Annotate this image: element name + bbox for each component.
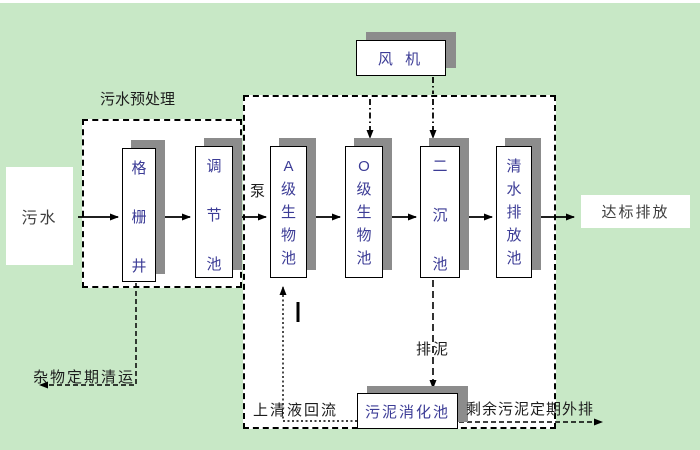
pretreatment-title: 污水预处理 [100,88,175,109]
regulating-tank-label: 调节池 [206,142,223,277]
sludge-discharge-label: 排泥 [416,338,450,359]
a-stage-bio-tank: A级生物池 [270,146,307,278]
influent-box: 污水 [6,167,73,265]
discharge-box: 达标排放 [581,195,690,228]
excess-sludge-label: 剩余污泥定期外排 [466,398,594,419]
discharge-label: 达标排放 [601,201,669,222]
secondary-clarifier-label: 二沉池 [432,142,449,277]
grid-well-tank: 格栅井 [122,148,156,282]
sludge-digester-label: 污泥消化池 [365,401,450,422]
clear-water-discharge-tank: 清水排放池 [496,146,532,278]
blower-box: 风 机 [356,40,446,76]
clear-water-discharge-label: 清水排放池 [506,147,523,277]
wastewater-treatment-flow-diagram: 污水 格栅井 调节池 A级生物池 O级生物池 二沉池 清水排放池 风 机 污泥消… [0,0,700,450]
secondary-clarifier-tank: 二沉池 [420,146,460,278]
o-stage-bio-tank-label: O级生物池 [356,147,373,277]
blower-label: 风 机 [378,48,424,69]
sludge-digester-box: 污泥消化池 [357,393,458,429]
supernatant-return-label: 上清液回流 [253,399,338,420]
debris-removal-label: 杂物定期清运 [33,366,135,387]
a-stage-bio-tank-label: A级生物池 [280,147,297,277]
pump-label: 泵 [250,180,265,201]
o-stage-bio-tank: O级生物池 [345,146,383,278]
grid-well-label: 格栅井 [131,144,148,281]
influent-label: 污水 [21,204,57,228]
regulating-tank: 调节池 [195,146,233,278]
